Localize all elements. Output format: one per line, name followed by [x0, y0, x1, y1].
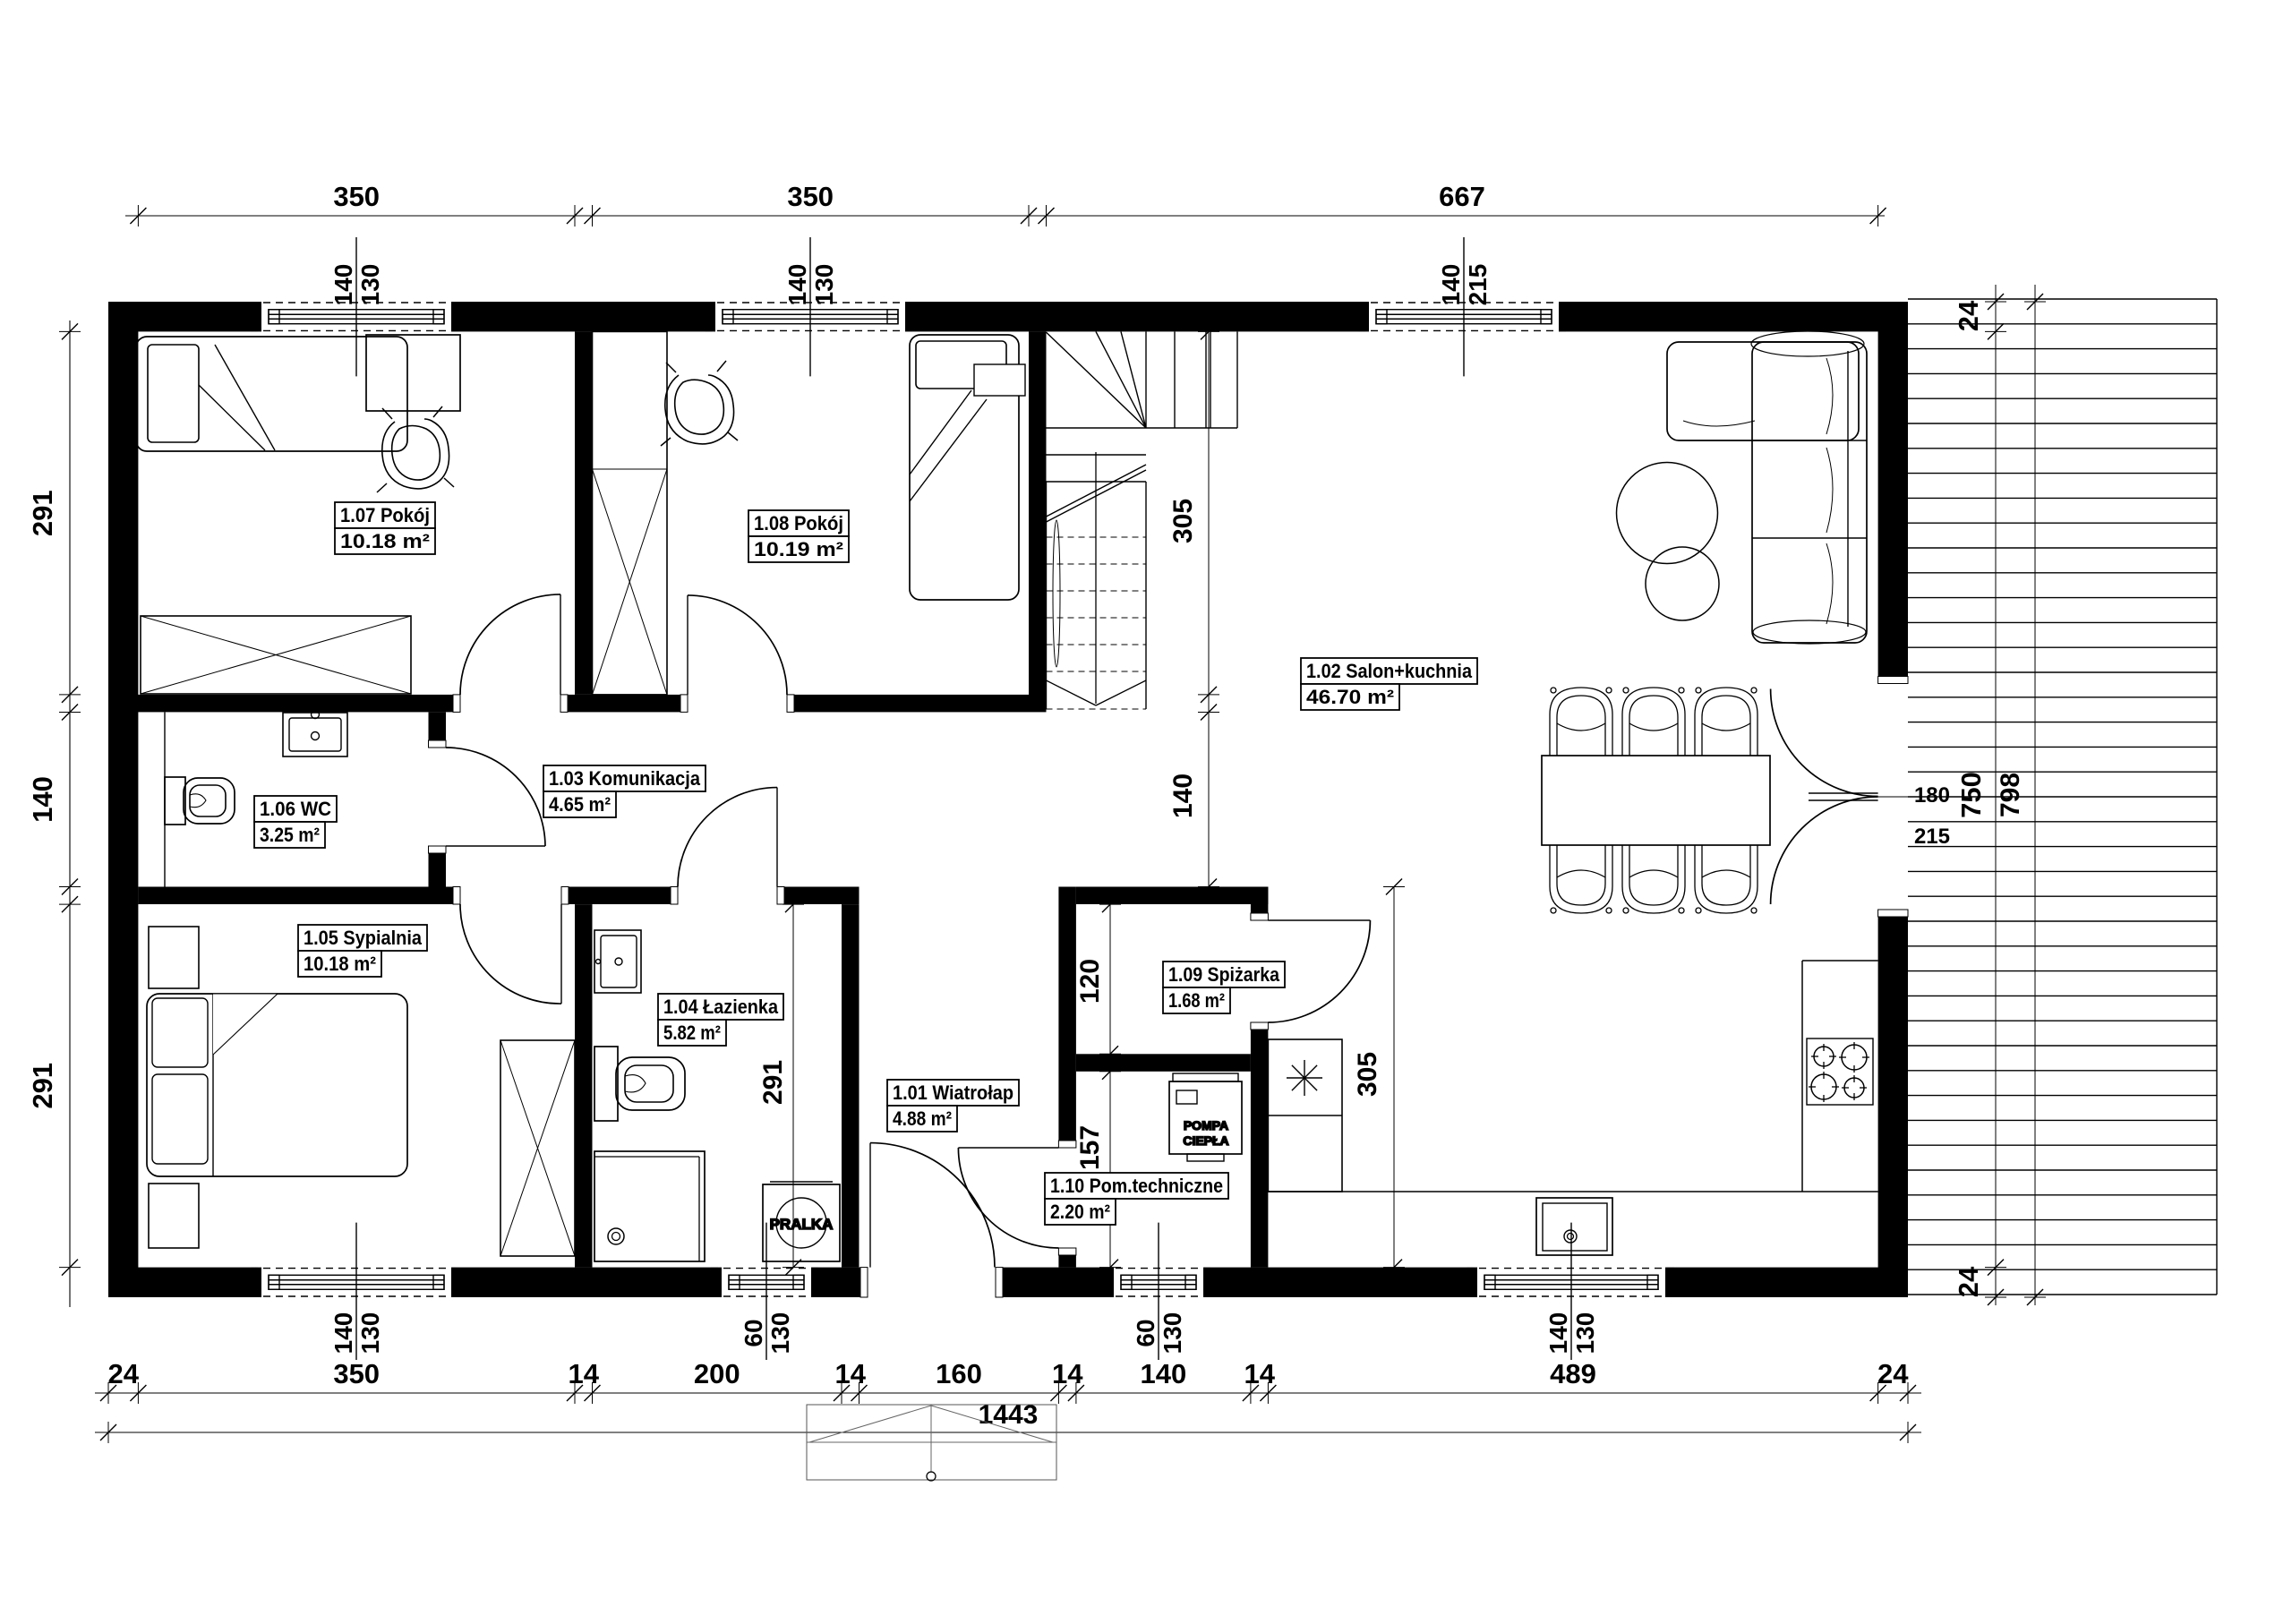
svg-text:14: 14: [1244, 1358, 1275, 1389]
svg-text:140: 140: [329, 264, 357, 306]
svg-text:1.07 Pokój: 1.07 Pokój: [340, 504, 430, 526]
svg-text:PRALKA: PRALKA: [770, 1216, 834, 1233]
svg-text:3.25 m²: 3.25 m²: [260, 824, 320, 846]
svg-text:POMPA: POMPA: [1184, 1118, 1228, 1133]
svg-text:1.04 Łazienka: 1.04 Łazienka: [663, 996, 779, 1018]
svg-text:130: 130: [356, 1312, 384, 1355]
svg-text:5.82 m²: 5.82 m²: [663, 1021, 721, 1044]
svg-text:291: 291: [27, 1063, 58, 1109]
svg-text:350: 350: [787, 181, 834, 212]
svg-text:1.10 Pom.techniczne: 1.10 Pom.techniczne: [1050, 1175, 1223, 1197]
svg-text:200: 200: [694, 1358, 740, 1389]
svg-text:2.20 m²: 2.20 m²: [1050, 1201, 1110, 1223]
svg-text:120: 120: [1075, 959, 1105, 1004]
svg-text:14: 14: [1052, 1358, 1083, 1389]
svg-text:14: 14: [835, 1358, 867, 1389]
svg-text:130: 130: [1159, 1312, 1186, 1355]
svg-text:215: 215: [1464, 264, 1492, 306]
svg-text:140: 140: [1437, 264, 1465, 306]
svg-text:24: 24: [1953, 1266, 1984, 1297]
svg-text:1.06 WC: 1.06 WC: [260, 798, 331, 820]
svg-text:305: 305: [1353, 1052, 1382, 1097]
svg-text:10.18 m²: 10.18 m²: [340, 530, 430, 552]
svg-text:157: 157: [1075, 1125, 1105, 1170]
svg-text:305: 305: [1168, 499, 1198, 543]
svg-text:1.05 Sypialnia: 1.05 Sypialnia: [304, 927, 423, 949]
svg-text:CIEPŁA: CIEPŁA: [1183, 1133, 1228, 1148]
svg-text:140: 140: [1544, 1312, 1572, 1355]
svg-text:180: 180: [1914, 783, 1950, 808]
svg-text:750: 750: [1955, 772, 1987, 818]
svg-text:140: 140: [27, 776, 58, 823]
svg-text:140: 140: [1168, 774, 1198, 818]
svg-text:1.01 Wiatrołap: 1.01 Wiatrołap: [893, 1081, 1013, 1104]
svg-text:1.68 m²: 1.68 m²: [1168, 989, 1225, 1012]
svg-text:60: 60: [740, 1319, 767, 1346]
svg-text:140: 140: [1141, 1358, 1187, 1389]
svg-text:291: 291: [27, 490, 58, 536]
svg-text:1.09 Spiżarka: 1.09 Spiżarka: [1168, 963, 1280, 986]
svg-text:60: 60: [1132, 1319, 1159, 1346]
svg-text:140: 140: [329, 1312, 357, 1355]
svg-text:160: 160: [936, 1358, 982, 1389]
svg-text:1.02 Salon+kuchnia: 1.02 Salon+kuchnia: [1306, 660, 1473, 682]
svg-text:10.19 m²: 10.19 m²: [754, 538, 843, 560]
svg-text:24: 24: [107, 1358, 139, 1389]
svg-text:10.18 m²: 10.18 m²: [304, 953, 376, 975]
svg-text:4.88 m²: 4.88 m²: [893, 1107, 952, 1130]
svg-text:350: 350: [333, 1358, 380, 1389]
svg-text:130: 130: [1571, 1312, 1599, 1355]
svg-text:350: 350: [333, 181, 380, 212]
svg-text:130: 130: [810, 264, 838, 306]
svg-text:14: 14: [568, 1358, 599, 1389]
svg-text:140: 140: [783, 264, 811, 306]
svg-text:24: 24: [1953, 300, 1984, 331]
svg-text:489: 489: [1550, 1358, 1596, 1389]
svg-text:1.03 Komunikacja: 1.03 Komunikacja: [549, 767, 701, 790]
svg-text:130: 130: [356, 264, 384, 306]
svg-text:291: 291: [758, 1060, 788, 1105]
svg-text:215: 215: [1914, 825, 1950, 849]
svg-text:667: 667: [1439, 181, 1485, 212]
svg-text:4.65 m²: 4.65 m²: [549, 793, 611, 816]
svg-text:24: 24: [1877, 1358, 1909, 1389]
svg-text:46.70 m²: 46.70 m²: [1306, 686, 1394, 708]
svg-text:130: 130: [766, 1312, 794, 1355]
svg-text:1.08 Pokój: 1.08 Pokój: [754, 512, 843, 534]
svg-text:798: 798: [1996, 773, 2025, 817]
